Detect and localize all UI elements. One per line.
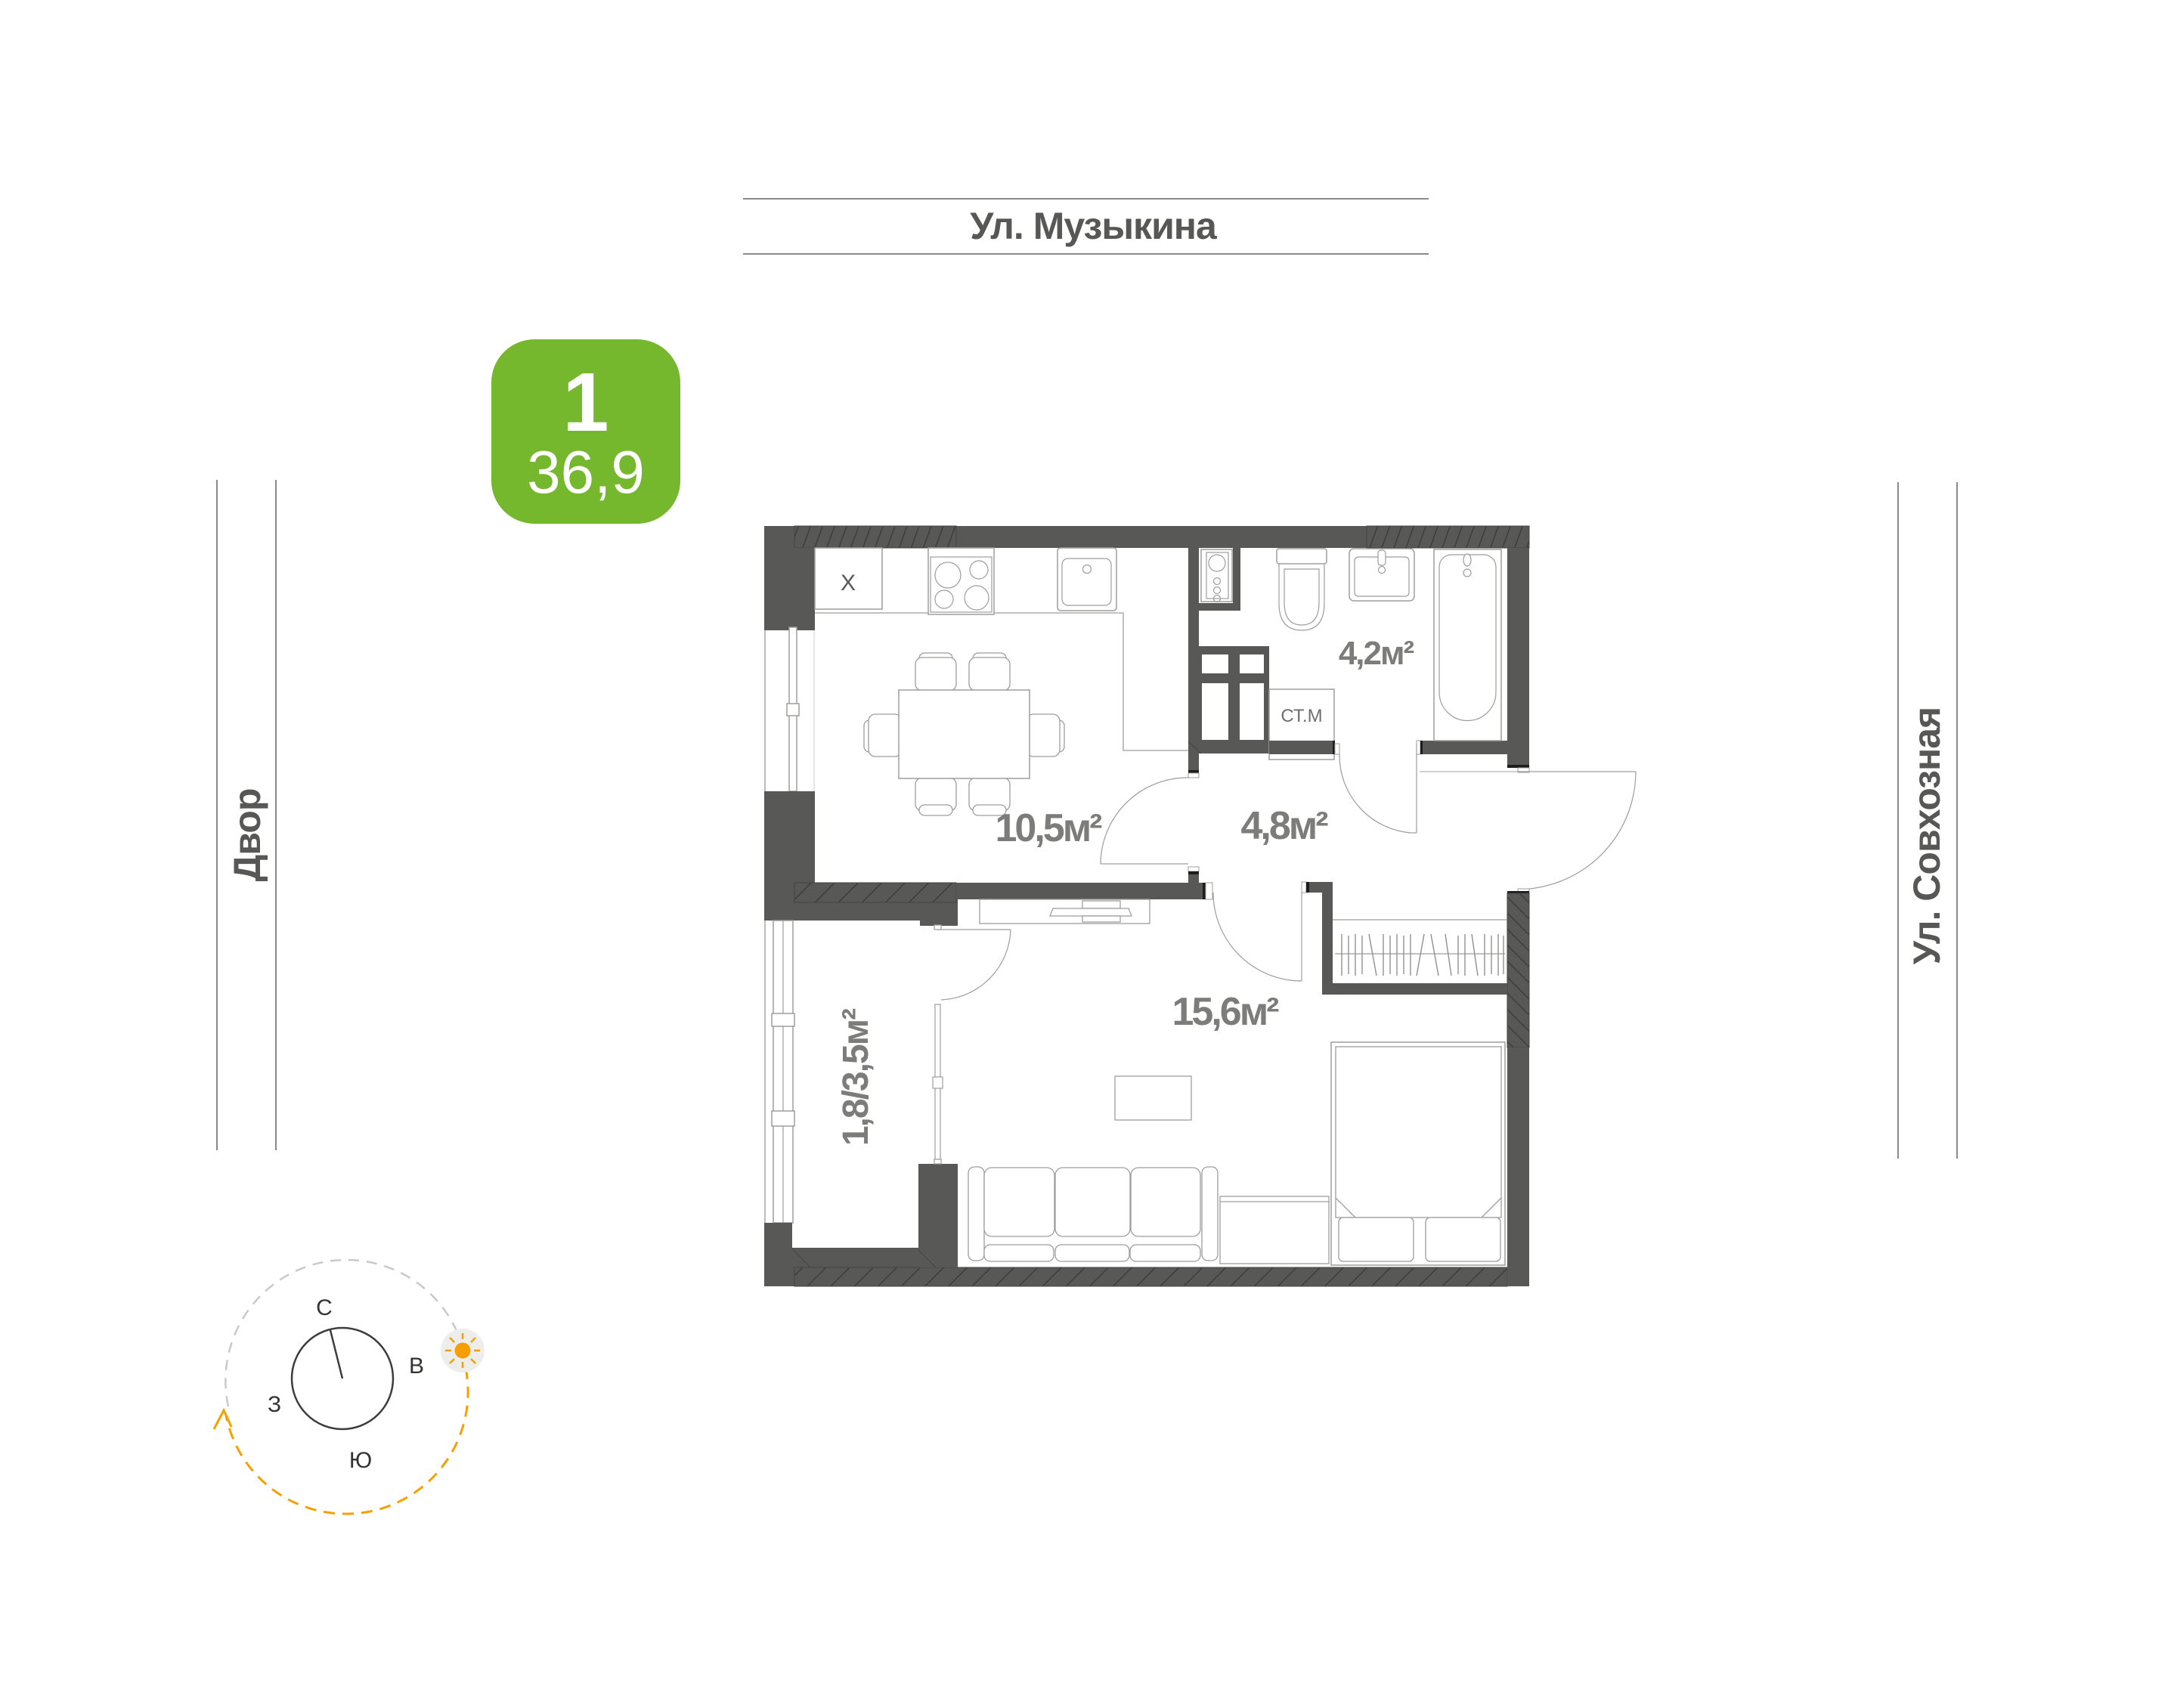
svg-text:15,6м²: 15,6м² xyxy=(1172,990,1280,1034)
svg-text:4,8м²: 4,8м² xyxy=(1240,804,1328,848)
svg-text:З: З xyxy=(268,1392,281,1417)
svg-text:10,5м²: 10,5м² xyxy=(996,806,1103,850)
svg-text:Двор: Двор xyxy=(226,789,268,882)
svg-text:1: 1 xyxy=(562,356,609,449)
svg-text:4,2м²: 4,2м² xyxy=(1339,635,1414,672)
svg-text:С: С xyxy=(316,1295,333,1320)
svg-text:Ул. Музыкина: Ул. Музыкина xyxy=(970,205,1218,247)
svg-text:СТ.М: СТ.М xyxy=(1280,706,1322,726)
svg-text:1,8/3,5м²: 1,8/3,5м² xyxy=(836,1009,876,1146)
svg-text:Ул. Совхозная: Ул. Совхозная xyxy=(1906,707,1948,964)
svg-text:X: X xyxy=(841,571,856,596)
svg-text:36,9: 36,9 xyxy=(527,438,645,506)
svg-text:В: В xyxy=(409,1354,424,1378)
svg-text:Ю: Ю xyxy=(349,1448,372,1473)
